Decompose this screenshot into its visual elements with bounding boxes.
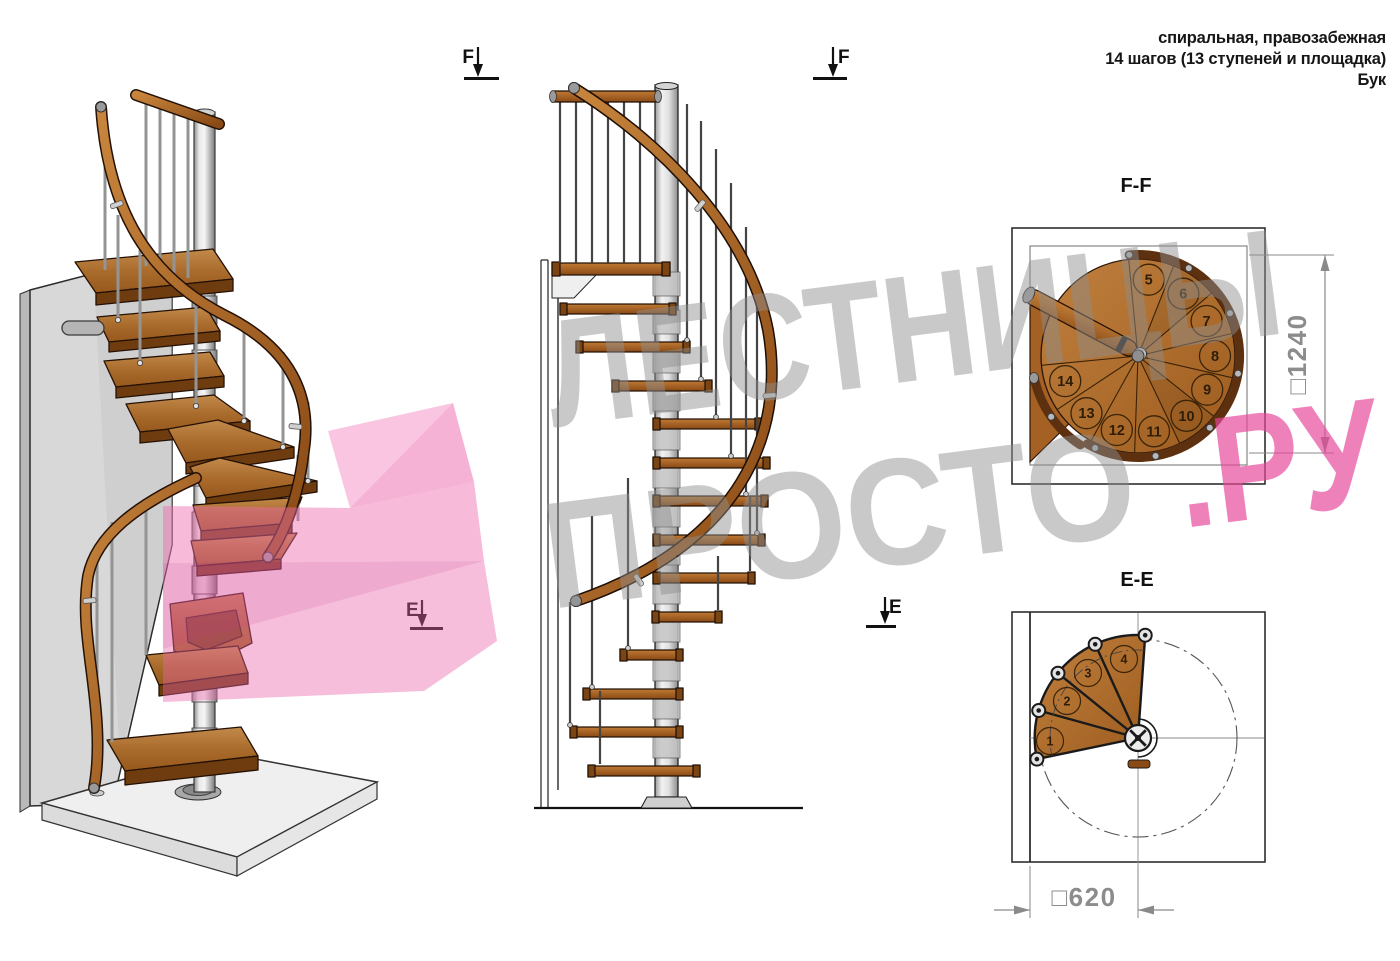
marker-f-label: F: [838, 47, 850, 68]
ee-step-number: 3: [1085, 667, 1092, 681]
marker-f-label: F: [462, 47, 474, 68]
marker-arrow-icon: [473, 64, 483, 77]
ee-step-number: 2: [1064, 695, 1071, 709]
ee-section-view: E-E: [994, 569, 1265, 918]
left-3d-view: [20, 95, 377, 876]
ee-title: E-E: [1120, 569, 1153, 591]
section-marker-f-left: F: [462, 47, 499, 79]
ee-dimension: □620: [994, 866, 1174, 918]
ee-step-number: 4: [1121, 653, 1128, 667]
tread-bar: [620, 649, 683, 661]
ff-title: F-F: [1120, 175, 1151, 197]
ee-step-number: 1: [1047, 735, 1054, 749]
tread-bar: [570, 726, 683, 738]
staircase-drawing: F-F: [0, 0, 1400, 961]
marker-e-label: E: [889, 597, 902, 618]
pole-base-elevation: [641, 797, 692, 808]
spec-header: спиральная, правозабежная 14 шагов (13 с…: [1105, 29, 1387, 89]
watermark-line2-pink: .РУ: [1166, 366, 1392, 561]
drawing-canvas: F-F: [0, 0, 1400, 961]
spec-line-steps: 14 шагов (13 ступеней и площадка): [1105, 50, 1386, 68]
section-marker-f-right: F: [813, 47, 850, 79]
tread-bar: [583, 688, 683, 700]
wall-bracket: [62, 321, 104, 335]
section-marker-e-right: E: [866, 597, 902, 627]
ee-dimension-label: □620: [1051, 882, 1116, 912]
tread-bar: [588, 765, 700, 777]
spec-line-material: Бук: [1358, 71, 1387, 89]
tread-bar: [552, 262, 670, 276]
top-rail-elevation: [551, 91, 660, 102]
marker-arrow-icon: [828, 64, 838, 77]
spec-line-type: спиральная, правозабежная: [1158, 29, 1386, 47]
